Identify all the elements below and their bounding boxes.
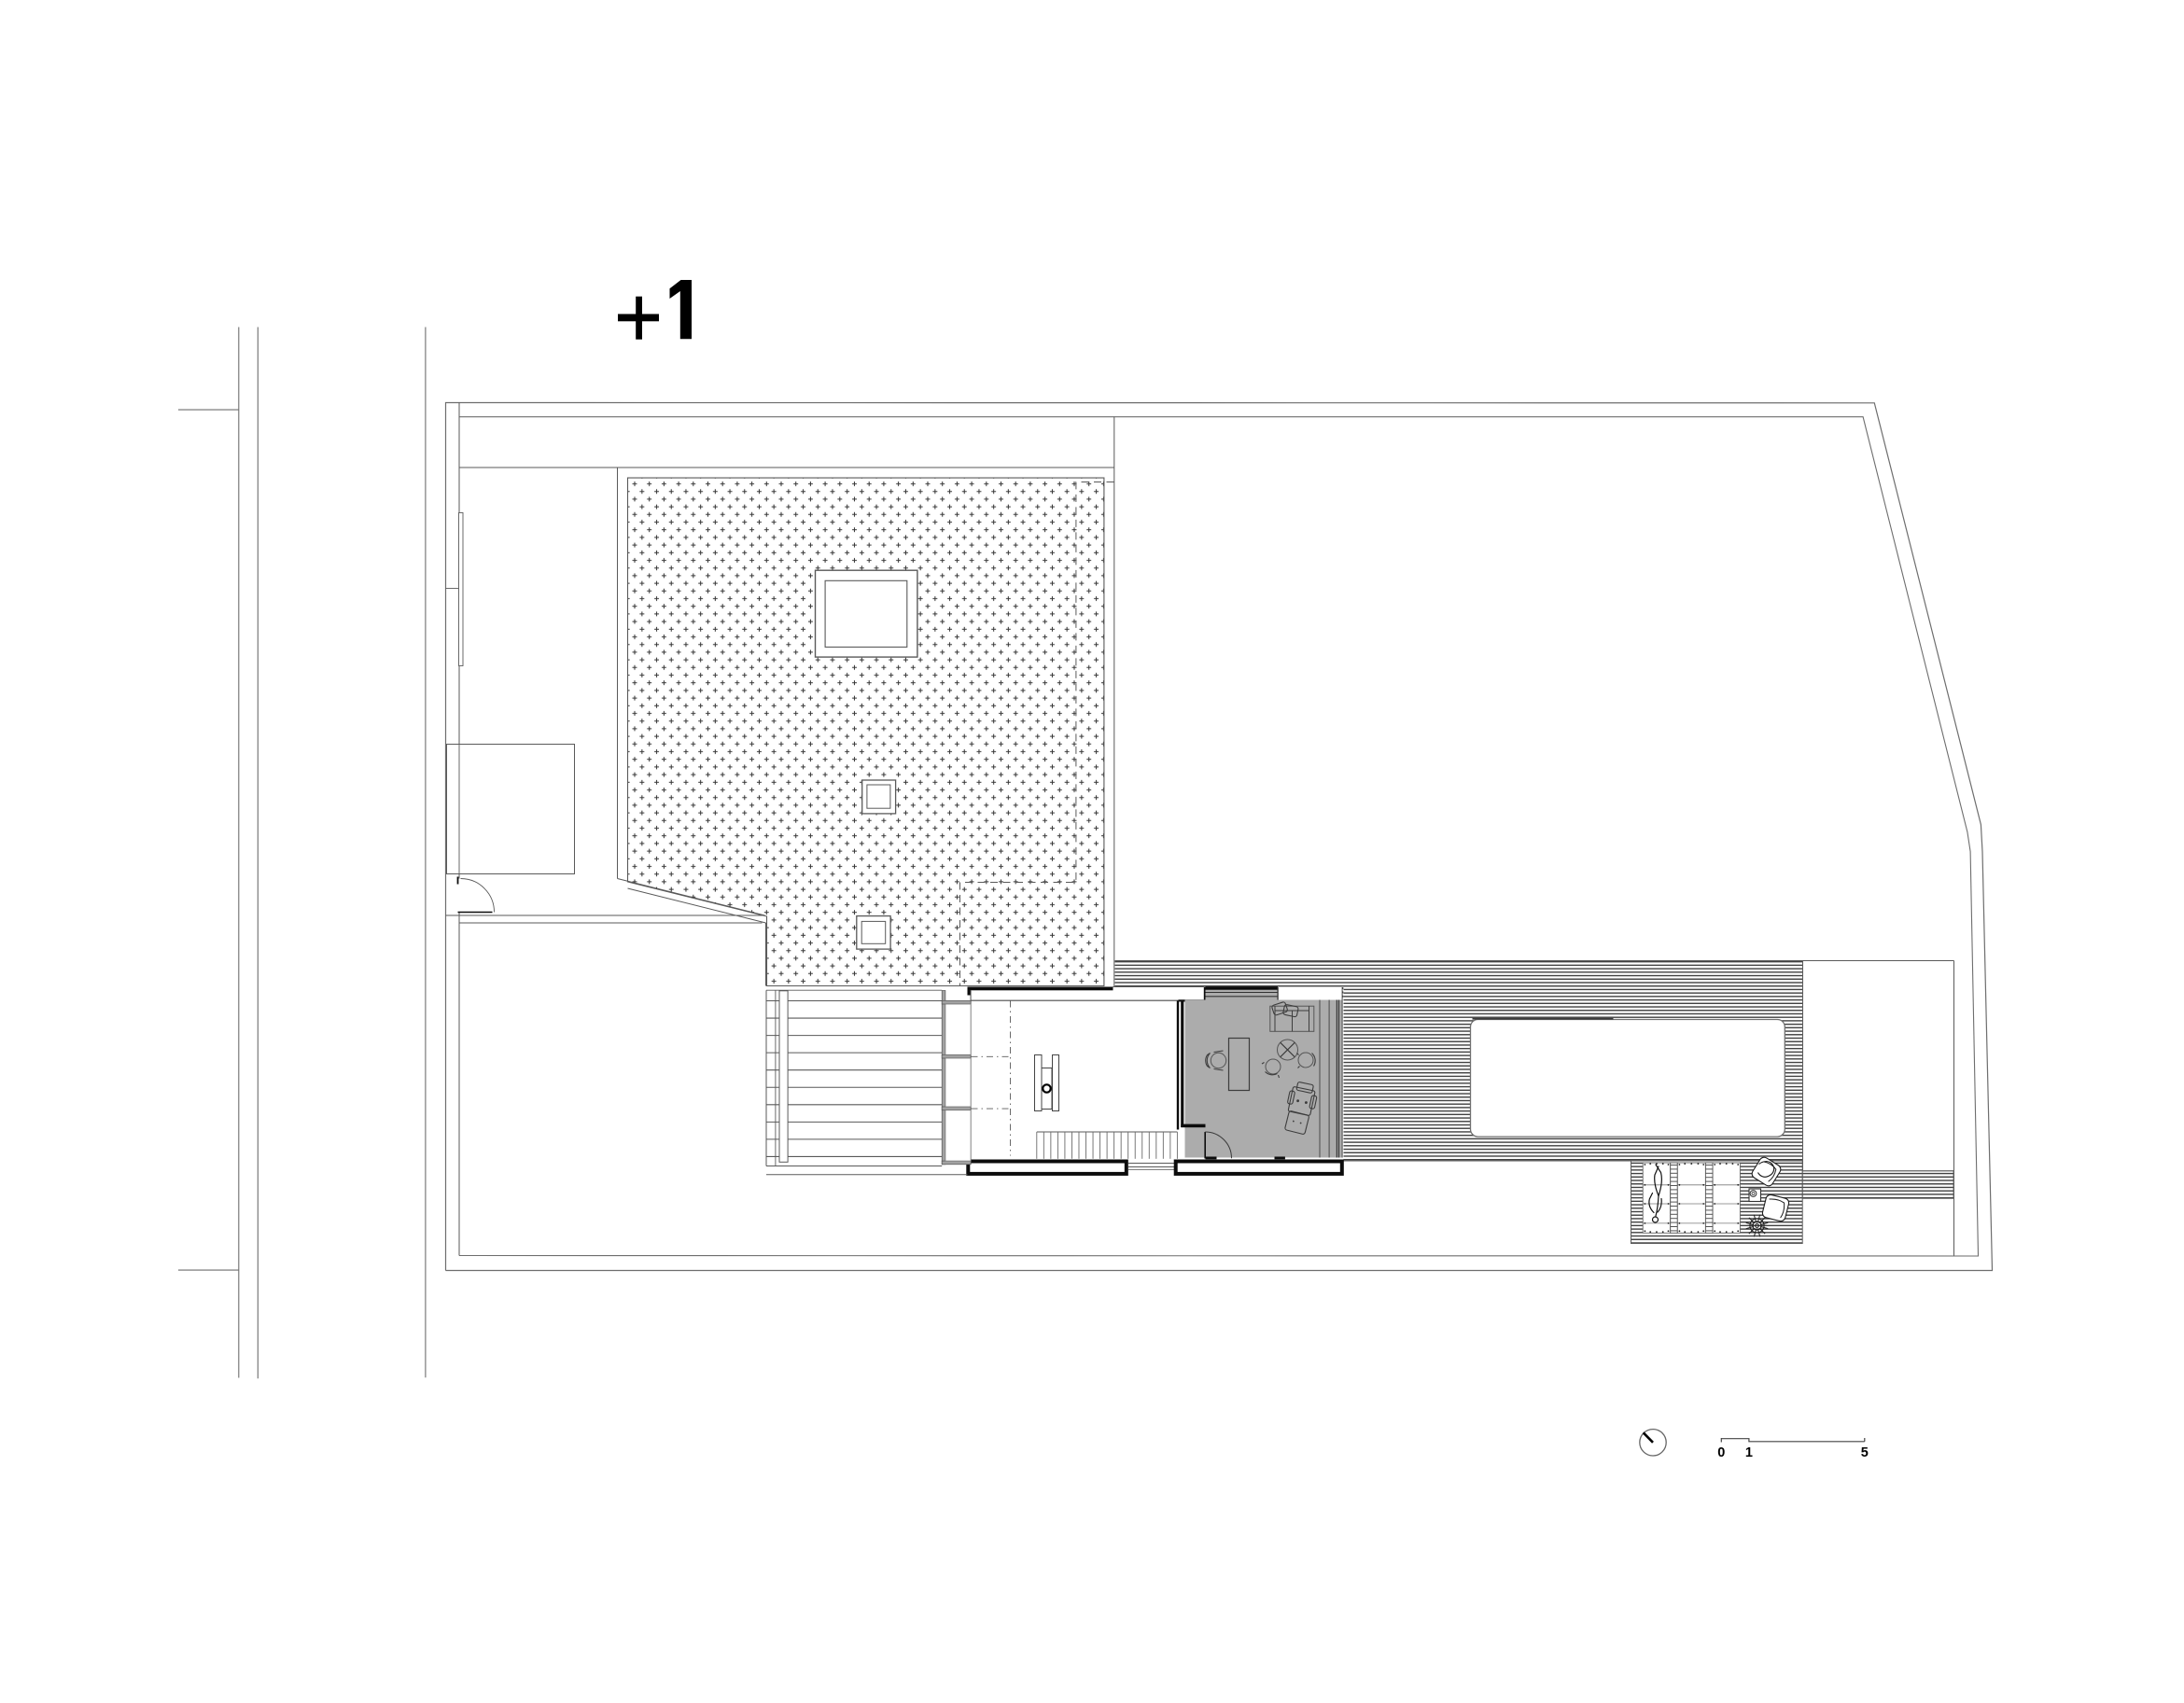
svg-text:0: 0 [1717, 1445, 1725, 1460]
svg-text:1: 1 [1745, 1445, 1753, 1460]
svg-text:5: 5 [1861, 1445, 1869, 1460]
